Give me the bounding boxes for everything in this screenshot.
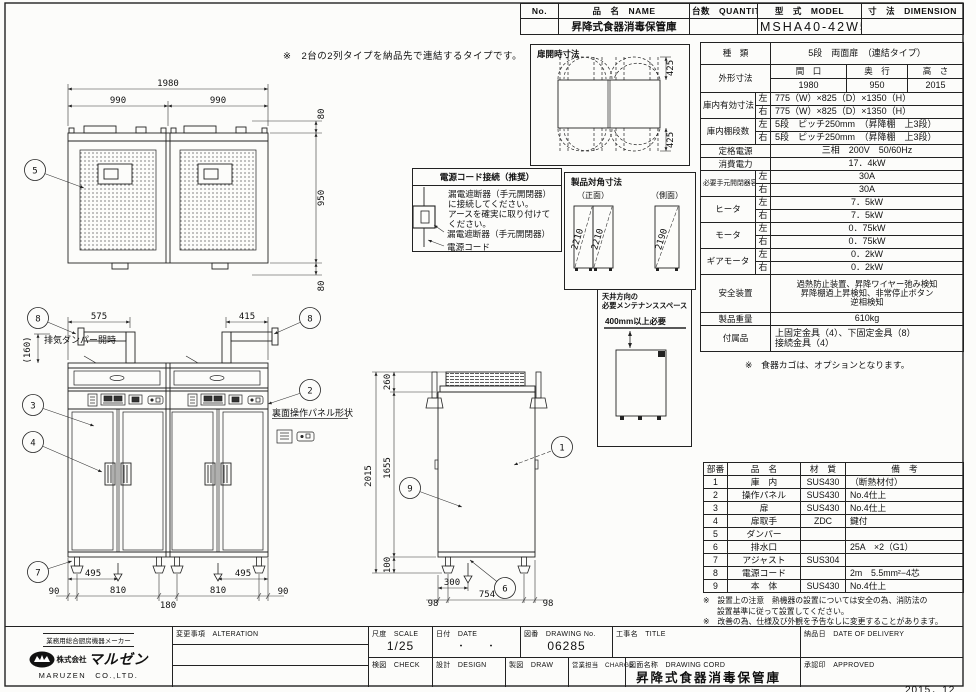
- callout-4: 4: [30, 439, 35, 449]
- dim-body-height: 1655: [383, 457, 393, 479]
- spec-acc-value: 上固定金具（4）、下固定金具（8） 接続金具（4）: [771, 326, 964, 352]
- breaker-callout-label: 漏電遮断器（手元開閉器）: [447, 229, 550, 239]
- part-material: [801, 528, 846, 541]
- part-material: [801, 567, 846, 580]
- scale-value: 1/25: [369, 639, 432, 653]
- header-no-value: [521, 19, 559, 35]
- parts-row: 2操作パネルSUS430No.4仕上: [704, 489, 964, 502]
- drawing-no-value: 06285: [521, 639, 612, 653]
- part-name: 庫 内: [728, 476, 801, 489]
- dim-leg5: 90: [278, 587, 289, 597]
- parts-row: 8電源コード2m 5.5mm²−4芯: [704, 567, 964, 580]
- spec-inner-left: 775（W）×825（D）×1350（H）: [771, 93, 964, 106]
- spec-breaker-label: 必要手元開閉器容量: [701, 171, 756, 197]
- spec-safety-value: 過熱防止装置、昇降ワイヤー弛み検知 昇降棚過上昇検知、非常停止ボタン 逆相検知: [771, 275, 964, 313]
- power-box-line1: 漏電遮断器（手元開閉器）: [448, 189, 551, 199]
- model-number: MSHA40-42W5E: [758, 19, 862, 35]
- power-box-line4: ください。: [448, 219, 491, 229]
- header-model-label: 型 式 MODEL: [758, 4, 862, 19]
- damper-label: 排気ダンパー開時: [44, 334, 116, 345]
- spec-shelf-left-tag: 左: [756, 119, 771, 132]
- delivery-label: 納品日 DATE OF DELIVERY: [804, 629, 904, 639]
- header-table: No. 品 名 NAME 台数 QUANTITY 型 式 MODEL 寸 法 D…: [520, 3, 964, 35]
- check-cell: 検図 CHECK: [368, 657, 432, 687]
- approved-cell: 承認印 APPROVED: [800, 657, 963, 687]
- header-value-row: 昇降式食器消毒保管庫 MSHA40-42W5E: [521, 19, 964, 35]
- part-name: 扉取手: [728, 515, 801, 528]
- spec-motor-left: 0．75kW: [771, 223, 964, 236]
- part-name: 扉: [728, 502, 801, 515]
- exhaust-ducts: [78, 328, 278, 363]
- part-no: 6: [704, 541, 728, 554]
- check-label: 検図 CHECK: [372, 660, 420, 670]
- spec-outer-depth: 950: [847, 79, 908, 93]
- dim-plan-top80: 80: [317, 109, 327, 120]
- dim-leg3: 180: [160, 601, 176, 611]
- header-no-label: No.: [521, 4, 559, 19]
- spec-motor-right-tag: 右: [756, 236, 771, 249]
- header-qty-label: 台数 QUANTITY: [690, 4, 758, 19]
- side-view: [426, 372, 547, 583]
- draw-label: 製図 DRAW: [509, 660, 553, 670]
- diagonal-box: 製品対角寸法 （正面） （側面）: [564, 172, 696, 290]
- callout-2: 2: [307, 387, 312, 397]
- dim-plan-right: 990: [210, 96, 226, 106]
- parts-row: 6排水口25A ×2（G1）: [704, 541, 964, 554]
- spec-gear-right: 0．2kW: [771, 262, 964, 275]
- parts-table: 部番 品 名 材 質 備 考 1庫 内SUS430（断熱材付） 2操作パネルSU…: [703, 462, 964, 593]
- spec-motor-left-tag: 左: [756, 223, 771, 236]
- part-name: 操作パネル: [728, 489, 801, 502]
- project-title-label: 工事名 TITLE: [616, 629, 666, 639]
- spec-outer-col2: 奥 行: [847, 65, 908, 79]
- dim-damper: (160): [23, 336, 33, 363]
- spec-heater-right-tag: 右: [756, 210, 771, 223]
- company-name: マルゼン: [89, 649, 149, 669]
- spec-acc-line2: 接続金具（4）: [775, 339, 961, 348]
- callout-1: 1: [559, 444, 564, 454]
- parts-row: 3扉SUS430No.4仕上: [704, 502, 964, 515]
- company-name-en: MARUZEN CO.,LTD.: [5, 670, 172, 681]
- parts-h-name: 品 名: [728, 463, 801, 476]
- dim-top-height: 260: [383, 374, 393, 390]
- spec-shelf-right-tag: 右: [756, 132, 771, 145]
- dim-foot2: 754: [479, 590, 495, 600]
- callout-5: 5: [32, 167, 37, 177]
- spec-gear-left: 0．2kW: [771, 249, 964, 262]
- spec-breaker-left: 30A: [771, 171, 964, 184]
- dim-plan-depth: 950: [317, 190, 327, 206]
- dim-leg1: 90: [49, 587, 60, 597]
- dim-plan-bottom80: 80: [317, 281, 327, 292]
- date-label: 日付 DATE: [436, 629, 477, 639]
- spec-safety-label: 安全装置: [701, 275, 771, 313]
- scale-cell: 尺度 SCALE 1/25: [368, 627, 432, 657]
- part-material: [801, 541, 846, 554]
- spec-heater-label: ヒータ: [701, 197, 756, 223]
- dim-leg2: 810: [110, 586, 126, 596]
- part-note: [846, 554, 964, 567]
- draw-cell: 製図 DRAW: [505, 657, 568, 687]
- spec-heater-left: 7．5kW: [771, 197, 964, 210]
- part-material: SUS430: [801, 580, 846, 593]
- dim-duct-right: 415: [239, 312, 255, 322]
- spec-breaker-right: 30A: [771, 184, 964, 197]
- control-panel-right: [188, 394, 263, 406]
- part-note: 2m 5.5mm²−4芯: [846, 567, 964, 580]
- spec-gear-left-tag: 左: [756, 249, 771, 262]
- maruzen-logo-icon: [29, 651, 55, 668]
- parts-header-row: 部番 品 名 材 質 備 考: [704, 463, 964, 476]
- parts-row: 9本 体SUS430No.4仕上: [704, 580, 964, 593]
- design-label: 設計 DESIGN: [436, 660, 487, 670]
- spec-outer-col3: 高 さ: [908, 65, 964, 79]
- diagonal-front-label: （正面）: [577, 190, 609, 201]
- spec-gear-label: ギアモータ: [701, 249, 756, 275]
- dim-drain-right: 495: [235, 569, 251, 579]
- spec-acc-label: 付属品: [701, 326, 771, 352]
- date-value: ・ ・: [433, 639, 520, 652]
- door-open-title: 扉開時寸法: [537, 48, 580, 60]
- door-open-box: 扉開時寸法: [530, 44, 690, 166]
- header-dim-value: [862, 19, 964, 35]
- spec-outer-label: 外形寸法: [701, 65, 771, 93]
- spec-shelf-label: 庫内棚段数: [701, 119, 756, 145]
- part-note: （断熱材付）: [846, 476, 964, 489]
- callout-3: 3: [30, 402, 35, 412]
- delivery-cell: 納品日 DATE OF DELIVERY: [800, 627, 963, 657]
- callout-6: 6: [502, 585, 507, 595]
- part-material: SUS304: [801, 554, 846, 567]
- dim-total-height: 2015: [364, 465, 374, 487]
- maintenance-clearance: 400mm以上必要: [605, 315, 666, 327]
- spec-weight-label: 製品重量: [701, 313, 771, 326]
- side-feet: [442, 557, 530, 573]
- drain-markers-front: [114, 563, 222, 581]
- part-no: 4: [704, 515, 728, 528]
- spec-motor-right: 0．75kW: [771, 236, 964, 249]
- spec-supply-value: 三相 200V 50/60Hz: [771, 145, 964, 158]
- part-no: 2: [704, 489, 728, 502]
- spec-shelf-left: 5段 ピッチ250mm （昇降棚 上3段）: [771, 119, 964, 132]
- drawing-no-label: 図番 DRAWING No.: [524, 629, 596, 639]
- drawing-name-value: 昇降式食器消毒保管庫: [636, 667, 781, 686]
- spec-breaker-left-tag: 左: [756, 171, 771, 184]
- power-box-title: 電源コード接続（推奨）: [413, 169, 561, 186]
- alteration-cell: 変更事項 ALTERATION: [172, 627, 368, 687]
- spec-kind-value: 5段 両面扉 （連結タイプ）: [771, 43, 964, 65]
- connection-note: ※ 2台の2列タイプを納品先で連結するタイプです。: [283, 48, 522, 62]
- title-block: 業務用総合厨房機器メーカー 株式会社 マルゼン MARUZEN CO.,LTD.…: [5, 626, 963, 686]
- plan-view: [68, 126, 268, 269]
- part-name: アジャスト: [728, 554, 801, 567]
- part-note: No.4仕上: [846, 580, 964, 593]
- part-material: SUS430: [801, 489, 846, 502]
- parts-h-mat: 材 質: [801, 463, 846, 476]
- rear-panel-icon: [277, 430, 314, 443]
- spec-breaker-right-tag: 右: [756, 184, 771, 197]
- spec-consumption-value: 17．4kW: [771, 158, 964, 171]
- control-panel-left: [88, 394, 163, 406]
- parts-row: 7アジャストSUS304: [704, 554, 964, 567]
- drawing-no-cell: 図番 DRAWING No. 06285: [520, 627, 612, 657]
- power-box-line3: アースを確実に取り付けて: [448, 209, 550, 219]
- design-cell: 設計 DESIGN: [432, 657, 505, 687]
- spec-inner-right: 775（W）×825（D）×1350（H）: [771, 106, 964, 119]
- door-handles: [105, 463, 231, 485]
- approved-label: 承認印 APPROVED: [804, 660, 875, 670]
- spec-inner-right-tag: 右: [756, 106, 771, 119]
- basket-option-note: ※ 食器カゴは、オプションとなります。: [745, 358, 910, 371]
- company-tagline: 業務用総合厨房機器メーカー: [43, 633, 134, 647]
- part-no: 9: [704, 580, 728, 593]
- maintenance-box: 天井方向の 必要メンテナンススペース 400mm以上必要: [597, 289, 692, 447]
- spec-heater-left-tag: 左: [756, 197, 771, 210]
- part-note: [846, 528, 964, 541]
- spec-consumption-label: 消費電力: [701, 158, 771, 171]
- spec-outer-width: 1980: [771, 79, 847, 93]
- spec-outer-col1: 間 口: [771, 65, 847, 79]
- part-material: ZDC: [801, 515, 846, 528]
- product-name: 昇降式食器消毒保管庫: [559, 19, 690, 35]
- diagonal-side-label: （側面）: [651, 190, 683, 201]
- rear-panel-label: 裏面操作パネル形状: [272, 407, 353, 418]
- drain-marker-side: [464, 563, 472, 583]
- dim-side-drain: 300: [444, 578, 460, 588]
- part-name: 本 体: [728, 580, 801, 593]
- part-no: 3: [704, 502, 728, 515]
- header-qty-value: [690, 19, 758, 35]
- install-note-2: 設置基準に従って設置してください。: [717, 607, 943, 618]
- part-no: 8: [704, 567, 728, 580]
- spec-weight-value: 610kg: [771, 313, 964, 326]
- scale-label: 尺度 SCALE: [372, 629, 418, 639]
- spec-shelf-right: 5段 ピッチ250mm （昇降棚 上3段）: [771, 132, 964, 145]
- alteration-label: 変更事項 ALTERATION: [176, 629, 258, 639]
- maintenance-title2: 必要メンテナンススペース: [602, 301, 687, 311]
- project-title-cell: 工事名 TITLE: [612, 627, 800, 657]
- header-label-row: No. 品 名 NAME 台数 QUANTITY 型 式 MODEL 寸 法 D…: [521, 4, 964, 19]
- company-prefix: 株式会社: [57, 654, 87, 665]
- install-notes: ※ 設置上の注意 熱機器の設置については安全の為、消防法の 設置基準に従って設置…: [703, 596, 943, 628]
- parts-h-note: 備 考: [846, 463, 964, 476]
- dim-foot3: 98: [543, 599, 554, 609]
- callout-9: 9: [407, 485, 412, 495]
- drawing-name-cell: 図面名称 DRAWING CORD 昇降式食器消毒保管庫: [625, 657, 800, 687]
- drawing-sheet: 1980 990 990 80 950 80: [0, 0, 976, 692]
- header-dim-label: 寸 法 DIMENSION: [862, 4, 964, 19]
- callout-8-right: 8: [307, 315, 312, 325]
- dim-leg4: 810: [210, 586, 226, 596]
- spec-heater-right: 7．5kW: [771, 210, 964, 223]
- header-name-label: 品 名 NAME: [559, 4, 690, 19]
- part-name: 排水口: [728, 541, 801, 554]
- dim-plan-total: 1980: [157, 79, 179, 89]
- spec-safety-line3: 逆相検知: [773, 298, 961, 307]
- part-name: 電源コード: [728, 567, 801, 580]
- part-note: No.4仕上: [846, 502, 964, 515]
- dim-plan-left: 990: [110, 96, 126, 106]
- dim-drain-left: 495: [85, 569, 101, 579]
- power-cord-box: 電源コード接続（推奨） 漏電遮断器（手元開閉器） に接続してください。 アースを…: [412, 168, 562, 252]
- part-no: 1: [704, 476, 728, 489]
- front-view: [68, 328, 278, 581]
- part-note: 25A ×2（G1）: [846, 541, 964, 554]
- parts-row: 1庫 内SUS430（断熱材付）: [704, 476, 964, 489]
- part-material: SUS430: [801, 502, 846, 515]
- callout-7: 7: [35, 569, 40, 579]
- date-cell: 日付 DATE ・ ・: [432, 627, 520, 657]
- dim-duct-left: 575: [91, 312, 107, 322]
- spec-motor-label: モータ: [701, 223, 756, 249]
- cord-callout-label: 電源コード: [447, 242, 490, 252]
- parts-row: 5ダンパー: [704, 528, 964, 541]
- dim-foot1: 98: [428, 599, 439, 609]
- side-dimensions: [372, 372, 548, 603]
- spec-table: 種 類 5段 両面扉 （連結タイプ） 外形寸法 間 口 奥 行 高 さ 1980…: [700, 42, 964, 352]
- charge-cell: 営業担当 CHARGE: [568, 657, 625, 687]
- part-note: No.4仕上: [846, 489, 964, 502]
- spec-inner-left-tag: 左: [756, 93, 771, 106]
- part-note: 鍵付: [846, 515, 964, 528]
- spec-kind-label: 種 類: [701, 43, 771, 65]
- dim-leg-height: 100: [383, 557, 393, 573]
- company-block: 業務用総合厨房機器メーカー 株式会社 マルゼン MARUZEN CO.,LTD.: [5, 627, 172, 687]
- parts-row: 4扉取手ZDC鍵付: [704, 515, 964, 528]
- spec-gear-right-tag: 右: [756, 262, 771, 275]
- diagonal-title: 製品対角寸法: [571, 176, 622, 188]
- power-box-line2: に接続してください。: [448, 199, 533, 209]
- parts-h-no: 部番: [704, 463, 728, 476]
- part-name: ダンパー: [728, 528, 801, 541]
- spec-inner-label: 庫内有効寸法: [701, 93, 756, 119]
- spec-supply-label: 定格電源: [701, 145, 771, 158]
- part-material: SUS430: [801, 476, 846, 489]
- part-no: 7: [704, 554, 728, 567]
- part-no: 5: [704, 528, 728, 541]
- callout-8-left: 8: [35, 315, 40, 325]
- install-note-1: ※ 設置上の注意 熱機器の設置については安全の為、消防法の: [703, 596, 943, 607]
- spec-outer-height: 2015: [908, 79, 964, 93]
